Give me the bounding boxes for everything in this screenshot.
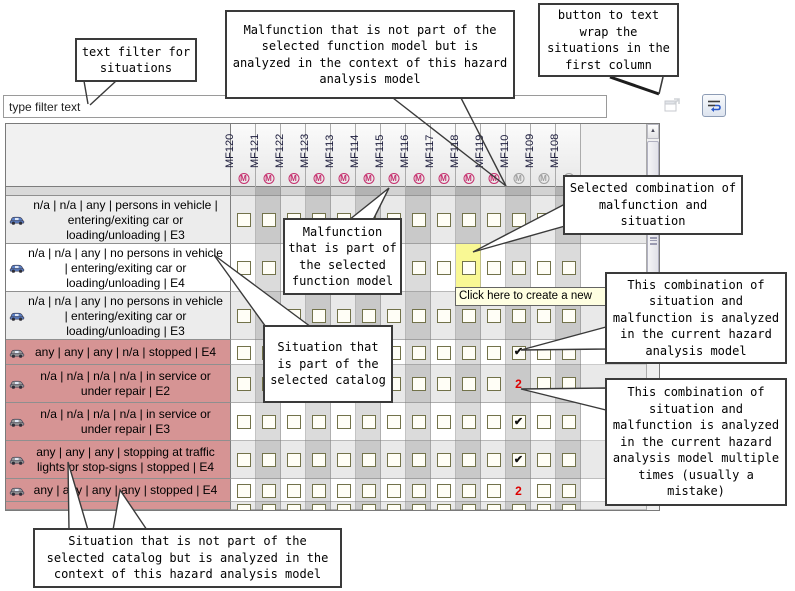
checkbox	[262, 261, 276, 275]
matrix-cell[interactable]	[481, 479, 506, 502]
car-icon	[9, 416, 25, 428]
checkbox	[412, 453, 426, 467]
checkbox	[237, 213, 251, 227]
checkbox	[362, 453, 376, 467]
checkbox	[462, 309, 476, 323]
malfunction-m-icon: M	[438, 173, 449, 184]
car-icon	[9, 310, 25, 322]
matrix-cell[interactable]	[456, 479, 481, 502]
matrix-cell[interactable]	[256, 502, 281, 510]
matrix-cell[interactable]	[531, 187, 556, 196]
matrix-header-row: MF120 M MF121 M MF122 M MF123 M MF113 M …	[6, 124, 659, 187]
matrix-cell[interactable]	[556, 244, 581, 292]
matrix-cell[interactable]	[556, 340, 581, 365]
checkbox	[287, 415, 301, 429]
checkbox	[362, 309, 376, 323]
checkbox	[487, 261, 501, 275]
checkbox	[537, 504, 551, 511]
situation-text: any | any | any | stopping at traffic li…	[25, 445, 226, 475]
matrix-cell[interactable]	[481, 340, 506, 365]
checkbox	[337, 415, 351, 429]
checkbox	[487, 484, 501, 498]
checkbox	[312, 453, 326, 467]
checked-checkbox: ✔	[512, 453, 526, 467]
checkbox	[387, 453, 401, 467]
matrix-cell[interactable]	[431, 403, 456, 441]
matrix-cell[interactable]	[531, 403, 556, 441]
checkbox	[462, 377, 476, 391]
car-icon	[9, 485, 25, 497]
scroll-up-button[interactable]: ▲	[647, 124, 659, 139]
malfunction-label: MF116	[399, 135, 411, 168]
checkbox	[537, 261, 551, 275]
situation-row-label[interactable]: n/a | n/a | n/a | n/a | in service or un…	[6, 365, 231, 403]
situation-row-label[interactable]: n/a | n/a | n/a | n/a | in service or un…	[6, 403, 231, 441]
checkbox	[412, 309, 426, 323]
matrix-cell[interactable]	[481, 365, 506, 403]
malfunction-m-icon: M	[288, 173, 299, 184]
checkbox	[437, 453, 451, 467]
checkbox	[412, 504, 426, 511]
matrix-cell[interactable]	[381, 502, 406, 510]
checkbox	[562, 415, 576, 429]
situation-text: n/a | n/a | any | persons in vehicle | e…	[25, 198, 226, 243]
matrix-cell[interactable]	[456, 403, 481, 441]
car-icon	[9, 262, 25, 274]
malfunction-label: MF114	[349, 135, 361, 168]
matrix-cell[interactable]	[281, 441, 306, 479]
checkbox	[537, 484, 551, 498]
checkbox	[237, 346, 251, 360]
situation-text: n/a | n/a | any | no persons in vehicle …	[25, 246, 226, 291]
checkbox	[537, 213, 551, 227]
checkbox	[237, 484, 251, 498]
situation-row-label[interactable]: n/a | n/a | any | no persons in vehicle …	[6, 244, 231, 292]
situation-row-label[interactable]: any | any | any | stopping at traffic li…	[6, 441, 231, 479]
matrix-cell[interactable]	[231, 502, 256, 510]
matrix-cell[interactable]	[531, 340, 556, 365]
matrix-cell[interactable]	[381, 441, 406, 479]
checkbox	[312, 504, 326, 511]
matrix-cell[interactable]	[231, 292, 256, 340]
matrix-cell[interactable]	[231, 196, 256, 244]
checkbox	[562, 484, 576, 498]
malfunction-label: MF110	[499, 135, 511, 168]
matrix-cell[interactable]	[506, 187, 531, 196]
checkbox	[462, 261, 476, 275]
situation-text: n/a | n/a | any | no persons in vehicle …	[25, 294, 226, 339]
matrix-cell[interactable]	[556, 441, 581, 479]
malfunction-label: MF115	[374, 135, 386, 168]
checkbox	[437, 504, 451, 511]
situation-row-label[interactable]: n/a | n/a | any | no persons in vehicle …	[6, 292, 231, 340]
matrix-cell[interactable]	[531, 244, 556, 292]
matrix-cell[interactable]	[306, 441, 331, 479]
matrix-cell[interactable]	[381, 403, 406, 441]
checkbox	[537, 346, 551, 360]
matrix-cell[interactable]	[231, 244, 256, 292]
matrix-cell[interactable]	[306, 403, 331, 441]
matrix-cell[interactable]	[281, 187, 306, 196]
malfunction-m-icon: M	[488, 173, 499, 184]
checkbox	[437, 484, 451, 498]
hazard-matrix: MF120 M MF121 M MF122 M MF123 M MF113 M …	[5, 123, 660, 511]
malfunction-m-icon: M	[538, 173, 549, 184]
callout-selected-combination: Selected combination of malfunction and …	[563, 175, 743, 235]
matrix-cell[interactable]	[256, 479, 281, 502]
checked-checkbox: ✔	[512, 415, 526, 429]
situation-column-header	[6, 124, 231, 187]
checkbox	[462, 346, 476, 360]
situation-text: any | any | any | n/a | stopped | E4	[35, 345, 216, 360]
checkbox	[237, 309, 251, 323]
checkbox	[312, 309, 326, 323]
checkbox	[437, 261, 451, 275]
callout-analyzed-multiple: This combination of situation and malfun…	[605, 378, 787, 506]
checkbox	[562, 309, 576, 323]
callout-analyzed-once: This combination of situation and malfun…	[605, 272, 787, 364]
checkbox	[412, 213, 426, 227]
matrix-cell[interactable]	[431, 340, 456, 365]
matrix-cell[interactable]	[406, 340, 431, 365]
checkbox	[337, 309, 351, 323]
malfunction-m-icon: M	[263, 173, 274, 184]
checkbox	[537, 377, 551, 391]
matrix-cell[interactable]	[431, 365, 456, 403]
situation-row-label[interactable]: any | any | any | any | stopped | E4	[6, 479, 231, 502]
matrix-cell[interactable]: ✔	[506, 441, 531, 479]
matrix-cell[interactable]	[431, 292, 456, 340]
callout-situation-external: Situation that is not part of the select…	[33, 528, 342, 588]
checkbox	[237, 504, 251, 511]
duplicate-count: 2	[515, 484, 522, 498]
matrix-cell[interactable]	[506, 502, 531, 510]
checkbox	[387, 504, 401, 511]
checkbox	[262, 504, 276, 511]
checkbox	[437, 346, 451, 360]
callout-malfunction-external: Malfunction that is not part of the sele…	[225, 10, 515, 99]
checkbox	[337, 504, 351, 511]
malfunction-label: MF119	[474, 135, 486, 168]
matrix-cell[interactable]	[256, 196, 281, 244]
callout-text-filter: text filter for situations	[75, 38, 197, 82]
matrix-cell[interactable]	[256, 187, 281, 196]
matrix-cell[interactable]	[331, 187, 356, 196]
matrix-cell[interactable]	[531, 196, 556, 244]
text-wrap-icon	[707, 99, 722, 112]
checkbox	[487, 453, 501, 467]
matrix-cell[interactable]	[231, 187, 256, 196]
checkbox	[237, 453, 251, 467]
matrix-cell[interactable]	[231, 365, 256, 403]
situation-text: n/a | n/a | n/a | n/a | in service or un…	[25, 407, 226, 437]
car-icon	[9, 378, 25, 390]
checkbox	[487, 346, 501, 360]
matrix-cell[interactable]	[306, 187, 331, 196]
matrix-row	[6, 502, 659, 510]
checkbox	[337, 484, 351, 498]
checkbox	[462, 453, 476, 467]
callout-malfunction-internal: Malfunction that is part of the selected…	[283, 218, 402, 295]
checkbox	[412, 261, 426, 275]
checkbox	[262, 453, 276, 467]
malfunction-m-icon: M	[363, 173, 374, 184]
checkbox	[287, 484, 301, 498]
malfunction-label: MF109	[524, 134, 536, 168]
checkbox	[437, 309, 451, 323]
checkbox	[237, 415, 251, 429]
checkbox	[387, 484, 401, 498]
situation-row-label[interactable]: any | any | any | n/a | stopped | E4	[6, 340, 231, 365]
car-icon	[9, 347, 25, 359]
matrix-cell[interactable]	[231, 403, 256, 441]
checkbox	[262, 484, 276, 498]
matrix-cell[interactable]	[506, 244, 531, 292]
checkbox	[312, 484, 326, 498]
situation-row-label[interactable]	[6, 502, 231, 510]
matrix-cell[interactable]	[331, 479, 356, 502]
matrix-cell[interactable]	[506, 196, 531, 244]
checkbox	[287, 453, 301, 467]
malfunction-m-icon: M	[513, 173, 524, 184]
matrix-cell[interactable]	[456, 340, 481, 365]
matrix-cell[interactable]	[406, 365, 431, 403]
matrix-row	[6, 187, 659, 196]
matrix-cell[interactable]	[406, 441, 431, 479]
checkbox	[237, 261, 251, 275]
matrix-cell[interactable]	[256, 244, 281, 292]
malfunction-label: MF121	[249, 134, 261, 168]
matrix-cell[interactable]	[481, 196, 506, 244]
matrix-cell[interactable]	[406, 292, 431, 340]
checkbox	[487, 309, 501, 323]
matrix-cell[interactable]	[231, 441, 256, 479]
car-icon	[9, 214, 25, 226]
checkbox	[512, 213, 526, 227]
checkbox	[562, 453, 576, 467]
callout-situation-catalog: Situation that is part of the selected c…	[263, 325, 393, 403]
matrix-cell[interactable]	[431, 502, 456, 510]
checkbox	[412, 415, 426, 429]
checkbox	[462, 504, 476, 511]
matrix-cell[interactable]: ✔	[506, 403, 531, 441]
matrix-cell[interactable]	[481, 441, 506, 479]
checkbox	[287, 504, 301, 511]
matrix-cell[interactable]	[556, 403, 581, 441]
checkbox	[262, 213, 276, 227]
situation-row-label[interactable]: n/a | n/a | any | persons in vehicle | e…	[6, 196, 231, 244]
checkbox	[362, 504, 376, 511]
matrix-row: n/a | n/a | n/a | n/a | in service or un…	[6, 403, 659, 441]
matrix-cell[interactable]	[456, 244, 481, 292]
checkbox	[462, 213, 476, 227]
checkbox	[262, 415, 276, 429]
checkbox	[437, 415, 451, 429]
matrix-cell[interactable]	[406, 502, 431, 510]
matrix-cell[interactable]	[256, 403, 281, 441]
situation-text: n/a | n/a | n/a | n/a | in service or un…	[25, 369, 226, 399]
matrix-cell[interactable]: ✔	[506, 340, 531, 365]
matrix-cell[interactable]	[356, 441, 381, 479]
matrix-cell[interactable]	[356, 187, 381, 196]
malfunction-m-icon: M	[338, 173, 349, 184]
matrix-cell[interactable]	[531, 365, 556, 403]
clear-filter-icon[interactable]	[663, 97, 681, 114]
checkbox	[537, 453, 551, 467]
malfunction-m-icon: M	[413, 173, 424, 184]
scrollbar-grip-icon	[650, 240, 657, 242]
checkbox	[387, 415, 401, 429]
matrix-cell[interactable]	[431, 196, 456, 244]
checkbox	[487, 213, 501, 227]
create-hazard-tooltip: Click here to create a new	[455, 287, 610, 306]
checkbox	[462, 415, 476, 429]
checkbox	[537, 309, 551, 323]
matrix-cell[interactable]	[456, 187, 481, 196]
checkbox	[487, 415, 501, 429]
matrix-cell[interactable]: 2	[506, 479, 531, 502]
checkbox	[362, 484, 376, 498]
matrix-cell[interactable]	[531, 502, 556, 510]
matrix-cell[interactable]	[531, 441, 556, 479]
matrix-cell[interactable]	[331, 502, 356, 510]
malfunction-m-icon: M	[463, 173, 474, 184]
malfunction-label: MF117	[424, 135, 436, 168]
matrix-cell[interactable]	[481, 187, 506, 196]
checkbox	[437, 377, 451, 391]
callout-wrap-button: button to text wrap the situations in th…	[538, 3, 679, 77]
matrix-cell[interactable]	[306, 502, 331, 510]
duplicate-count: 2	[515, 377, 522, 391]
checkbox	[487, 504, 501, 511]
malfunction-label: MF113	[324, 135, 336, 168]
matrix-cell[interactable]	[331, 441, 356, 479]
matrix-cell[interactable]	[431, 479, 456, 502]
malfunction-m-icon: M	[313, 173, 324, 184]
situation-text: any | any | any | any | stopped | E4	[34, 483, 218, 498]
checkbox	[337, 453, 351, 467]
checkbox	[537, 415, 551, 429]
matrix-cell[interactable]	[406, 187, 431, 196]
matrix-cell[interactable]	[256, 441, 281, 479]
matrix-cell[interactable]	[306, 479, 331, 502]
matrix-cell[interactable]	[456, 196, 481, 244]
matrix-row: any | any | any | stopping at traffic li…	[6, 441, 659, 479]
matrix-cell[interactable]	[406, 403, 431, 441]
matrix-cell[interactable]	[356, 479, 381, 502]
screenshot-root: { "filter": { "value": "type filter text…	[0, 0, 795, 591]
matrix-cell[interactable]	[331, 403, 356, 441]
checkbox	[562, 346, 576, 360]
checkbox	[562, 261, 576, 275]
matrix-cell[interactable]	[356, 502, 381, 510]
checkbox	[487, 377, 501, 391]
malfunction-m-icon: M	[238, 173, 249, 184]
matrix-cell[interactable]	[281, 403, 306, 441]
checkbox	[262, 309, 276, 323]
malfunction-label: MF122	[274, 134, 286, 168]
matrix-cell[interactable]	[456, 441, 481, 479]
matrix-cell[interactable]	[281, 479, 306, 502]
matrix-cell[interactable]	[356, 403, 381, 441]
matrix-cell[interactable]	[231, 479, 256, 502]
matrix-cell[interactable]	[431, 187, 456, 196]
malfunction-label: MF120	[224, 134, 236, 168]
matrix-cell[interactable]	[531, 479, 556, 502]
matrix-cell[interactable]	[406, 479, 431, 502]
malfunction-label: MF108	[549, 134, 561, 168]
matrix-cell[interactable]	[431, 441, 456, 479]
checkbox	[412, 484, 426, 498]
checkbox	[437, 213, 451, 227]
malfunction-label: MF118	[449, 135, 461, 168]
checkbox	[462, 484, 476, 498]
matrix-cell[interactable]	[431, 244, 456, 292]
matrix-cell[interactable]	[481, 502, 506, 510]
checkbox	[237, 377, 251, 391]
matrix-cell[interactable]	[556, 502, 581, 510]
car-icon	[9, 454, 25, 466]
matrix-cell[interactable]	[381, 479, 406, 502]
matrix-cell[interactable]	[406, 196, 431, 244]
wrap-first-column-button[interactable]	[702, 94, 726, 117]
checkbox	[512, 504, 526, 511]
situation-row-label[interactable]	[6, 187, 231, 196]
matrix-cell[interactable]	[231, 340, 256, 365]
matrix-cell[interactable]	[406, 244, 431, 292]
matrix-cell[interactable]	[456, 365, 481, 403]
checkbox	[312, 415, 326, 429]
malfunction-label: MF123	[299, 134, 311, 168]
checked-checkbox: ✔	[512, 346, 526, 360]
matrix-cell[interactable]	[281, 502, 306, 510]
checkbox	[562, 377, 576, 391]
checkbox	[562, 504, 576, 511]
matrix-cell[interactable]	[556, 365, 581, 403]
checkbox	[512, 261, 526, 275]
checkbox	[412, 377, 426, 391]
checkbox	[287, 309, 301, 323]
checkbox	[412, 346, 426, 360]
checkbox	[512, 309, 526, 323]
checkbox	[362, 415, 376, 429]
matrix-cell[interactable]: 2	[506, 365, 531, 403]
matrix-cell[interactable]	[381, 187, 406, 196]
malfunction-m-icon: M	[388, 173, 399, 184]
matrix-cell[interactable]	[481, 403, 506, 441]
matrix-cell[interactable]	[481, 244, 506, 292]
matrix-cell[interactable]	[456, 502, 481, 510]
matrix-row: any | any | any | any | stopped | E42	[6, 479, 659, 502]
matrix-cell[interactable]	[556, 479, 581, 502]
checkbox	[387, 309, 401, 323]
